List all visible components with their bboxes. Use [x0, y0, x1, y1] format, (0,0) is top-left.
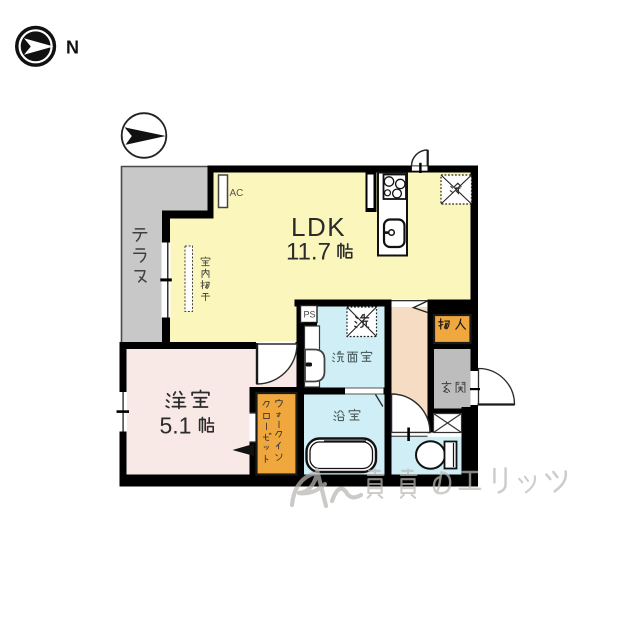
svg-text:5.1: 5.1: [160, 413, 192, 439]
svg-text:AC: AC: [230, 188, 244, 199]
svg-text:11.7: 11.7: [286, 239, 331, 266]
svg-text:N: N: [66, 38, 79, 58]
svg-text:LDK: LDK: [291, 212, 346, 242]
svg-text:PS: PS: [304, 310, 316, 320]
